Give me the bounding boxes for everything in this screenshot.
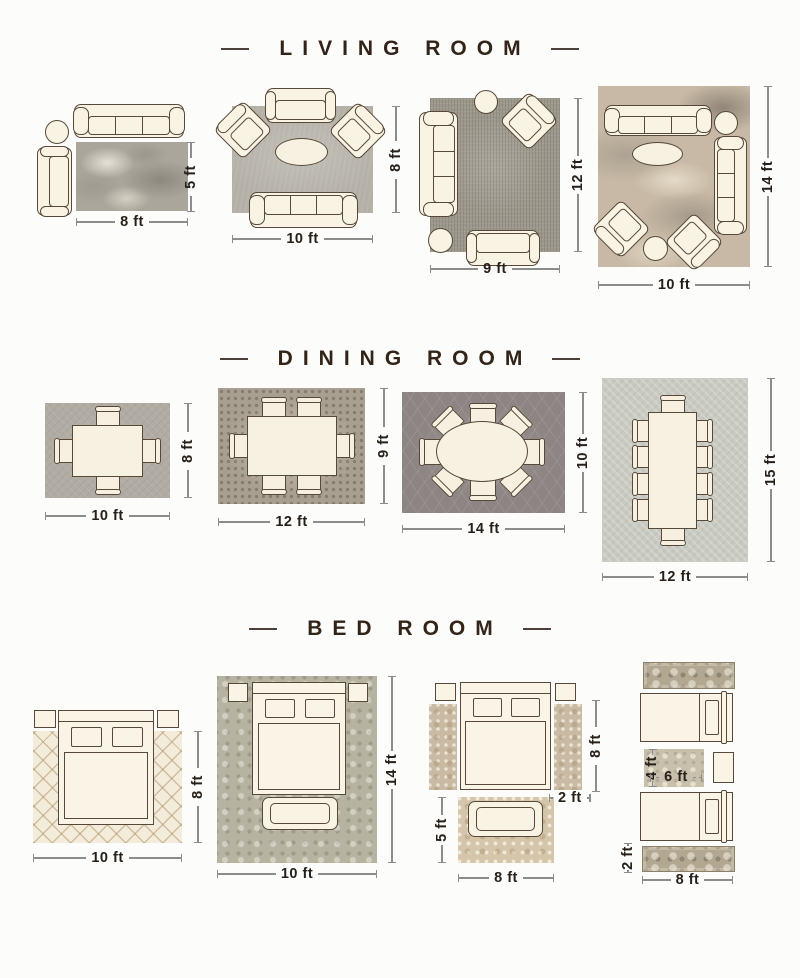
sofa	[714, 137, 747, 234]
header-dash-right	[523, 628, 551, 630]
nightstand	[713, 752, 734, 783]
dim-rug-height: 8 ft	[180, 403, 196, 498]
dim-rug-width: 8 ft	[76, 214, 188, 230]
dim-rug-width: 12 ft	[602, 569, 748, 585]
runner-rug	[429, 704, 457, 790]
sofa	[250, 192, 357, 228]
bench	[262, 797, 338, 830]
dim-runner-height: 8 ft	[588, 700, 604, 792]
dim-rug-width: 10 ft	[598, 277, 750, 293]
section-header-living-room: LIVING ROOM	[0, 36, 800, 62]
dining-table	[72, 425, 143, 477]
dim-rug-height: 5 ft	[434, 797, 450, 863]
dim-rug-width: 14 ft	[402, 521, 565, 537]
dim-rug-height: 12 ft	[570, 98, 586, 252]
coffee-table	[275, 138, 328, 166]
rug-size-guide: LIVING ROOM 5 ft 8 ft 8 ft 10 ft	[0, 0, 800, 978]
sofa	[419, 112, 458, 216]
header-dash-right	[552, 358, 580, 360]
pouf	[474, 90, 498, 114]
dining-table	[648, 412, 697, 529]
nightstand	[555, 683, 576, 701]
side-table	[45, 120, 69, 144]
chaise	[37, 147, 72, 216]
bed	[252, 682, 346, 795]
dim-runner-width: 2 ft	[620, 843, 636, 873]
runner-rug	[643, 662, 735, 689]
coffee-table	[632, 142, 683, 166]
sofa	[605, 105, 711, 136]
header-dash-left	[221, 48, 249, 50]
dim-rug-height: 9 ft	[376, 388, 392, 504]
dining-table	[436, 421, 528, 482]
dim-rug-height: 14 ft	[760, 86, 776, 267]
section-header-dining-room: DINING ROOM	[0, 346, 800, 372]
dim-rug-width: 12 ft	[218, 514, 365, 530]
dim-between-rug-width: 6 ft	[650, 769, 702, 785]
section-title: DINING ROOM	[268, 347, 533, 371]
nightstand	[435, 683, 456, 701]
pouf	[428, 228, 453, 253]
dim-rug-width: 9 ft	[430, 261, 560, 277]
area-rug	[76, 142, 188, 211]
bench	[468, 801, 543, 837]
header-dash-left	[220, 358, 248, 360]
nightstand	[157, 710, 179, 728]
dim-rug-height: 15 ft	[763, 378, 779, 562]
nightstand	[228, 683, 248, 702]
dim-runner-width: 2 ft	[549, 790, 589, 806]
header-dash-right	[551, 48, 579, 50]
dim-rug-height: 8 ft	[388, 106, 404, 213]
nightstand	[34, 710, 56, 728]
section-title: BED ROOM	[297, 617, 503, 641]
dim-runner-length: 8 ft	[642, 872, 733, 888]
pouf	[714, 111, 738, 135]
dim-rug-width: 10 ft	[217, 866, 377, 882]
dim-rug-height: 5 ft	[183, 142, 199, 212]
header-dash-left	[249, 628, 277, 630]
dim-rug-width: 10 ft	[33, 850, 182, 866]
section-title: LIVING ROOM	[269, 37, 530, 61]
dim-rug-height: 8 ft	[190, 731, 206, 843]
nightstand	[348, 683, 368, 702]
dining-table	[247, 416, 337, 476]
section-header-bed-room: BED ROOM	[0, 616, 800, 642]
dim-rug-width: 8 ft	[458, 870, 554, 886]
twin-bed	[640, 693, 733, 742]
sofa	[74, 104, 184, 138]
dim-rug-width: 10 ft	[232, 231, 373, 247]
bed	[460, 682, 551, 790]
dim-rug-height: 14 ft	[384, 676, 400, 863]
dim-rug-width: 10 ft	[45, 508, 170, 524]
runner-rug	[554, 704, 582, 790]
dim-rug-height: 10 ft	[575, 392, 591, 513]
bed	[58, 710, 154, 825]
pouf	[643, 236, 668, 261]
runner-rug	[642, 846, 735, 872]
sofa	[266, 88, 335, 123]
twin-bed	[640, 792, 733, 841]
